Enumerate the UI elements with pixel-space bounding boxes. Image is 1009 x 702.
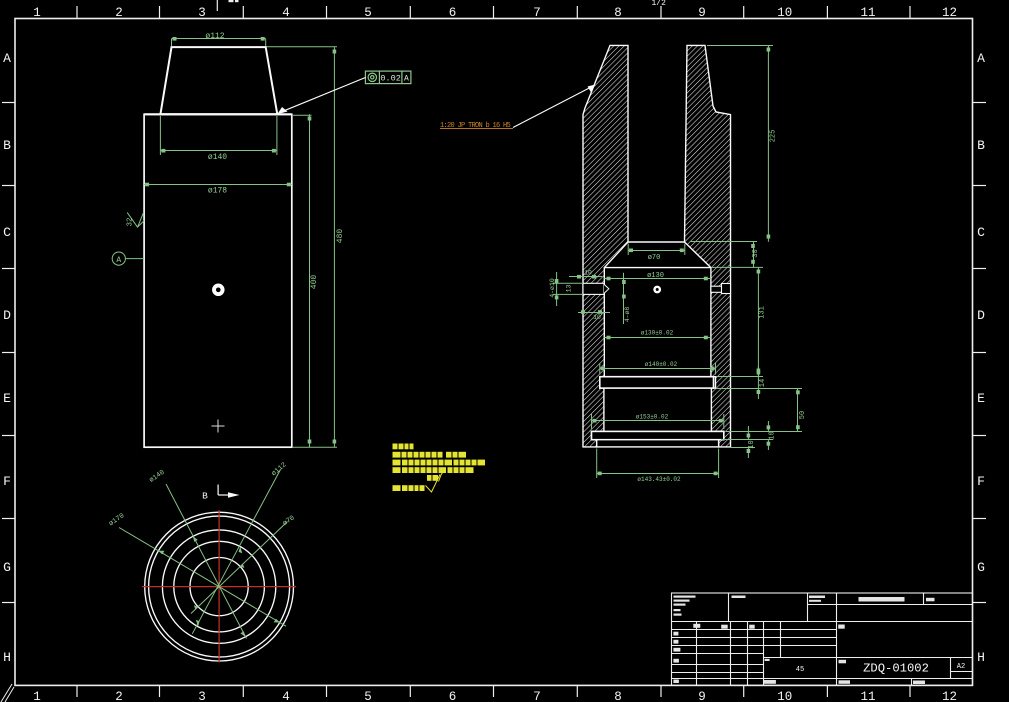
- svg-text:10: 10: [777, 690, 792, 702]
- svg-text:H: H: [3, 650, 11, 665]
- svg-text:7: 7: [533, 690, 541, 702]
- svg-text:131: 131: [759, 306, 767, 319]
- svg-text:E: E: [3, 391, 11, 406]
- svg-text:13: 13: [566, 285, 573, 293]
- svg-text:2: 2: [115, 690, 123, 702]
- svg-text:9: 9: [698, 690, 706, 702]
- svg-text:D: D: [977, 308, 985, 323]
- svg-text:1: 1: [33, 690, 41, 702]
- svg-text:8: 8: [614, 6, 622, 20]
- svg-text:ø178: ø178: [208, 187, 227, 196]
- svg-text:10: 10: [748, 440, 756, 448]
- svg-text:A: A: [3, 51, 11, 66]
- svg-text:B: B: [3, 138, 11, 153]
- svg-text:1: 1: [33, 6, 41, 20]
- svg-text:10: 10: [593, 314, 601, 321]
- svg-text:G: G: [977, 560, 985, 575]
- svg-text:10: 10: [768, 431, 776, 439]
- svg-text:F: F: [977, 474, 985, 489]
- svg-text:50: 50: [799, 411, 807, 419]
- svg-text:ø130: ø130: [647, 272, 664, 280]
- svg-text:ZDQ-01002: ZDQ-01002: [863, 662, 929, 676]
- svg-text:E: E: [977, 391, 985, 406]
- svg-text:ø140: ø140: [208, 153, 227, 162]
- svg-text:C: C: [977, 225, 985, 240]
- svg-text:A: A: [977, 51, 985, 66]
- svg-text:2: 2: [115, 6, 123, 20]
- svg-text:ø130±0.02: ø130±0.02: [641, 330, 674, 337]
- svg-text:480: 480: [336, 229, 345, 244]
- svg-text:G: G: [3, 560, 11, 575]
- svg-text:32: 32: [127, 217, 135, 226]
- svg-text:5: 5: [364, 6, 372, 20]
- svg-text:8: 8: [614, 690, 622, 702]
- svg-text:10: 10: [777, 6, 792, 20]
- svg-text:9: 9: [698, 6, 706, 20]
- svg-text:C: C: [3, 225, 11, 240]
- svg-text:1/2: 1/2: [651, 0, 666, 8]
- svg-text:ø143.43±0.02: ø143.43±0.02: [637, 476, 681, 483]
- svg-text:12: 12: [942, 690, 957, 702]
- svg-text:10: 10: [584, 270, 592, 277]
- svg-text:H: H: [977, 650, 985, 665]
- svg-text:225: 225: [770, 130, 778, 143]
- svg-text:ø153±0.02: ø153±0.02: [636, 414, 669, 421]
- svg-text:11: 11: [860, 6, 875, 20]
- svg-text:6: 6: [449, 690, 457, 702]
- svg-text:A2: A2: [957, 663, 965, 671]
- svg-text:4-ø10: 4-ø10: [549, 278, 556, 298]
- svg-text:A: A: [116, 256, 121, 265]
- svg-text:4-ø8: 4-ø8: [624, 307, 631, 323]
- svg-text:14: 14: [759, 379, 767, 387]
- svg-text:ø70: ø70: [648, 254, 661, 262]
- svg-text:ø140±0.02: ø140±0.02: [645, 361, 678, 368]
- svg-text:4: 4: [282, 690, 290, 702]
- svg-text:4: 4: [282, 6, 290, 20]
- svg-text:400: 400: [310, 275, 319, 290]
- svg-text:3: 3: [198, 690, 206, 702]
- svg-text:B: B: [202, 491, 208, 502]
- svg-text:11: 11: [860, 690, 875, 702]
- svg-text:6: 6: [449, 6, 457, 20]
- svg-text:A: A: [404, 75, 409, 84]
- svg-text:B: B: [977, 138, 985, 153]
- svg-text:D: D: [3, 308, 11, 323]
- svg-text:F: F: [3, 474, 11, 489]
- svg-text:3: 3: [198, 6, 206, 20]
- svg-text:45: 45: [796, 666, 804, 674]
- svg-text:12: 12: [942, 6, 957, 20]
- svg-text:0.02: 0.02: [380, 74, 400, 84]
- svg-text:ø112: ø112: [205, 32, 224, 41]
- svg-text:5: 5: [364, 690, 372, 702]
- svg-text:7: 7: [533, 6, 541, 20]
- svg-text:30: 30: [752, 249, 760, 257]
